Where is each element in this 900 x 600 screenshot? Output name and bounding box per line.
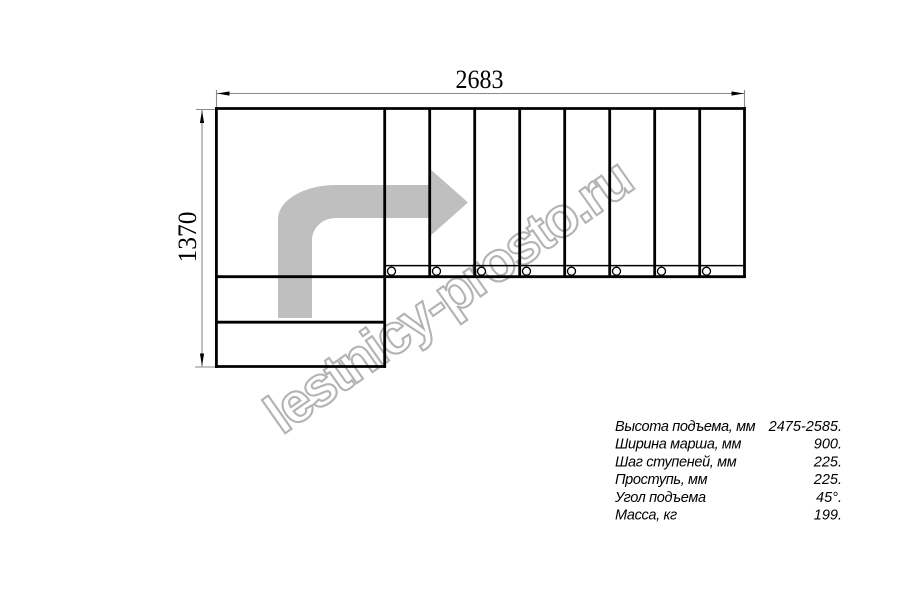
svg-text:199.: 199. [814, 508, 842, 524]
svg-text:900.: 900. [814, 437, 842, 453]
svg-text:Угол подъема: Угол подъема [614, 490, 706, 506]
svg-text:2475-2585.: 2475-2585. [768, 419, 842, 435]
svg-text:2683: 2683 [456, 64, 504, 94]
svg-text:225.: 225. [813, 472, 842, 488]
svg-text:1370: 1370 [172, 212, 202, 263]
svg-text:225.: 225. [813, 454, 842, 470]
svg-text:Масса, кг: Масса, кг [615, 508, 677, 524]
svg-text:45°.: 45°. [816, 490, 842, 506]
svg-text:Ширина марша, мм: Ширина марша, мм [615, 437, 742, 453]
svg-text:Шаг ступеней, мм: Шаг ступеней, мм [615, 454, 737, 470]
svg-text:Проступь, мм: Проступь, мм [615, 472, 708, 488]
svg-text:Высота подъема, мм: Высота подъема, мм [615, 419, 756, 435]
